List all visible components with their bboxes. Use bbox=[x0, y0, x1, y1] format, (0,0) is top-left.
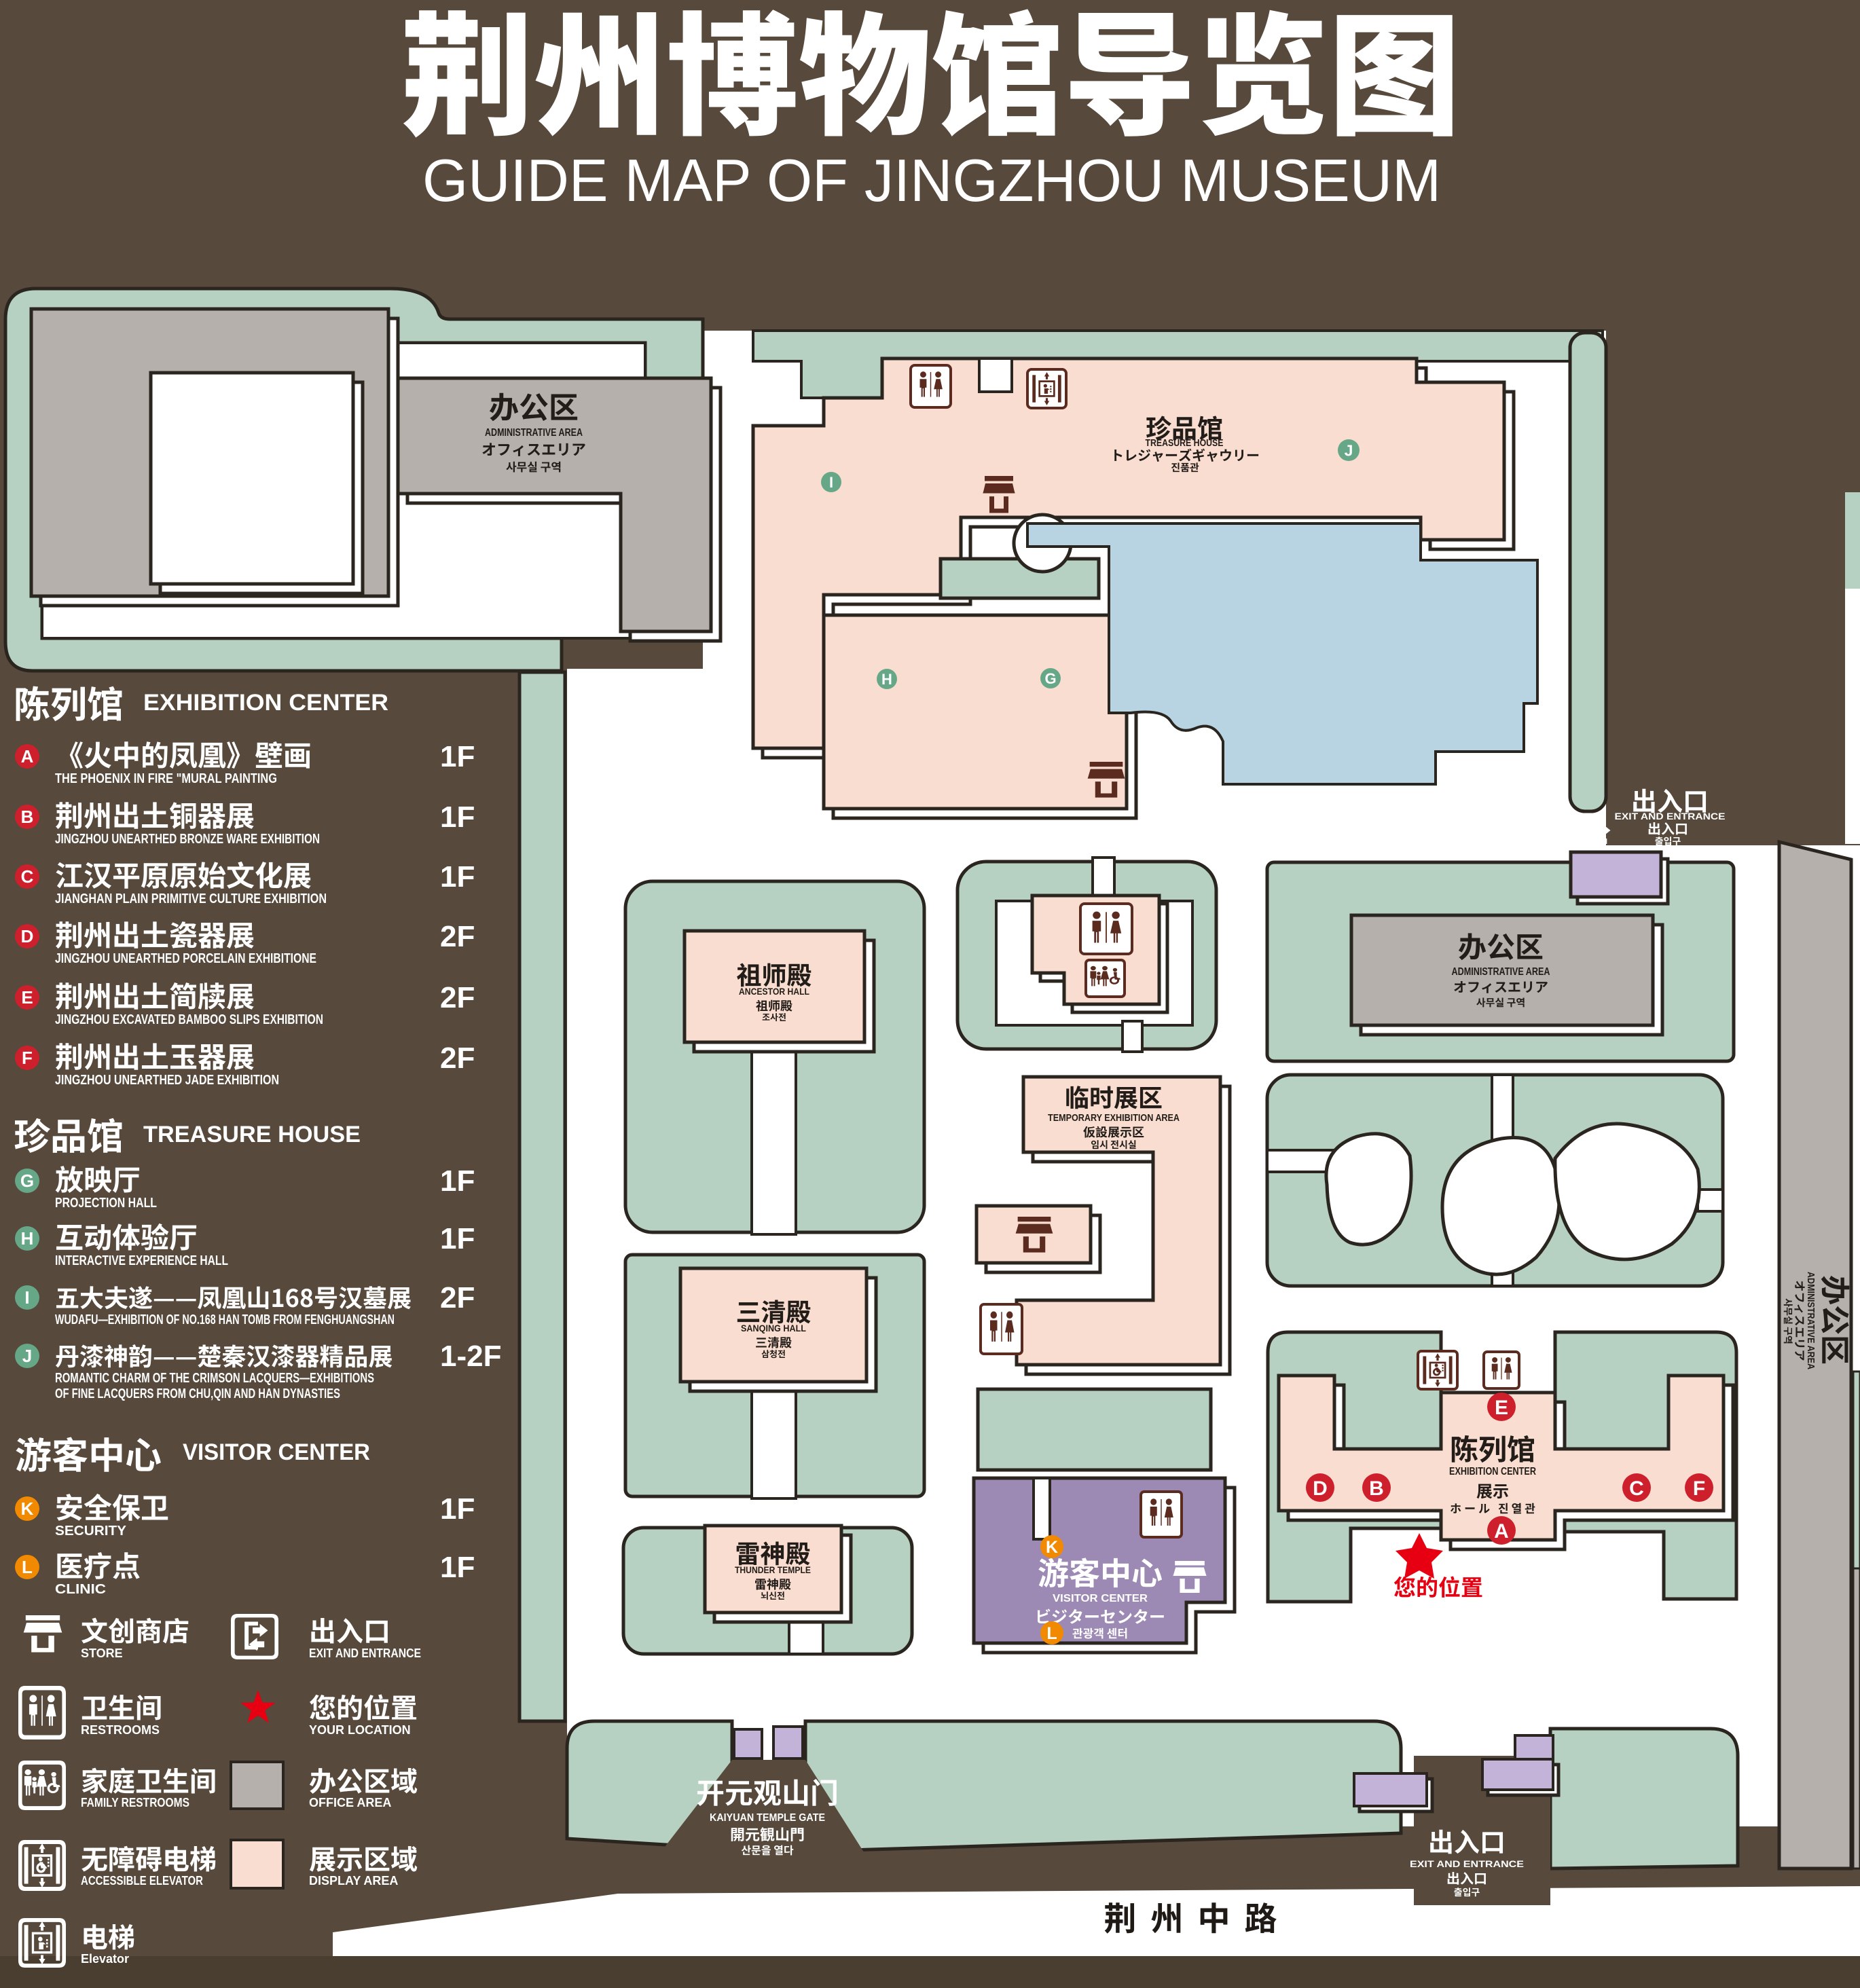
svg-text:C: C bbox=[21, 866, 34, 887]
svg-text:2F: 2F bbox=[440, 1281, 475, 1314]
svg-text:OF FINE LACQUERS FROM CHU,QIN: OF FINE LACQUERS FROM CHU,QIN AND HAN DY… bbox=[55, 1386, 340, 1401]
svg-text:ADMINISTRATIVE AREA: ADMINISTRATIVE AREA bbox=[485, 427, 583, 439]
svg-text:TEMPORARY EXHIBITION AREA: TEMPORARY EXHIBITION AREA bbox=[1048, 1112, 1180, 1124]
svg-text:1F: 1F bbox=[440, 1164, 475, 1198]
svg-text:OFFICE AREA: OFFICE AREA bbox=[309, 1796, 391, 1809]
svg-text:B: B bbox=[21, 807, 34, 827]
svg-text:VISITOR CENTER: VISITOR CENTER bbox=[1053, 1593, 1148, 1604]
svg-text:F: F bbox=[1693, 1477, 1705, 1500]
svg-text:GUIDE MAP OF JINGZHOU MUSEUM: GUIDE MAP OF JINGZHOU MUSEUM bbox=[422, 147, 1441, 214]
svg-text:1F: 1F bbox=[440, 1551, 475, 1584]
svg-text:2F: 2F bbox=[440, 981, 475, 1014]
svg-text:C: C bbox=[1629, 1477, 1644, 1500]
svg-text:2F: 2F bbox=[440, 920, 475, 953]
svg-text:I: I bbox=[829, 474, 833, 491]
svg-text:THUNDER TEMPLE: THUNDER TEMPLE bbox=[735, 1564, 811, 1575]
svg-text:EXIT AND ENTRANCE: EXIT AND ENTRANCE bbox=[1615, 811, 1726, 822]
svg-text:J: J bbox=[1345, 441, 1353, 459]
svg-text:Elevator: Elevator bbox=[81, 1952, 129, 1966]
svg-text:TREASURE HOUSE: TREASURE HOUSE bbox=[1146, 437, 1224, 449]
svg-text:F: F bbox=[22, 1048, 33, 1068]
svg-text:JINGZHOU UNEARTHED PORCELAIN E: JINGZHOU UNEARTHED PORCELAIN EXHIBITIONE bbox=[55, 951, 316, 966]
svg-text:B: B bbox=[1369, 1477, 1384, 1500]
svg-text:VISITOR CENTER: VISITOR CENTER bbox=[183, 1439, 370, 1465]
svg-text:SECURITY: SECURITY bbox=[55, 1524, 127, 1539]
svg-text:JIANGHAN PLAIN PRIMITIVE CULTU: JIANGHAN PLAIN PRIMITIVE CULTURE EXHIBIT… bbox=[55, 891, 327, 906]
svg-text:THE PHOENIX IN FIRE "MURAL PAI: THE PHOENIX IN FIRE "MURAL PAINTING bbox=[55, 771, 277, 786]
svg-text:SANQING HALL: SANQING HALL bbox=[741, 1323, 806, 1333]
svg-text:JINGZHOU EXCAVATED BAMBOO SLIP: JINGZHOU EXCAVATED BAMBOO SLIPS EXHIBITI… bbox=[55, 1012, 323, 1027]
svg-text:ANCESTOR HALL: ANCESTOR HALL bbox=[739, 986, 809, 997]
svg-text:ROMANTIC CHARM OF THE CRIMSON: ROMANTIC CHARM OF THE CRIMSON LACQUERS—E… bbox=[55, 1371, 374, 1386]
svg-text:A: A bbox=[1494, 1520, 1509, 1543]
svg-text:KAIYUAN TEMPLE GATE: KAIYUAN TEMPLE GATE bbox=[710, 1812, 825, 1824]
svg-text:H: H bbox=[21, 1228, 34, 1249]
svg-text:1F: 1F bbox=[440, 740, 475, 773]
svg-text:K: K bbox=[1046, 1538, 1058, 1557]
svg-text:1F: 1F bbox=[440, 1492, 475, 1526]
svg-text:RESTROOMS: RESTROOMS bbox=[81, 1723, 160, 1737]
svg-text:1F: 1F bbox=[440, 1222, 475, 1255]
svg-text:1F: 1F bbox=[440, 860, 475, 894]
svg-text:EXIT AND ENTRANCE: EXIT AND ENTRANCE bbox=[309, 1646, 421, 1660]
svg-text:I: I bbox=[24, 1287, 29, 1308]
svg-text:YOUR LOCATION: YOUR LOCATION bbox=[309, 1723, 411, 1737]
svg-text:D: D bbox=[21, 926, 34, 946]
svg-text:JINGZHOU UNEARTHED JADE EXHIBI: JINGZHOU UNEARTHED JADE EXHIBITION bbox=[55, 1073, 279, 1088]
svg-text:EXHIBITION CENTER: EXHIBITION CENTER bbox=[143, 690, 388, 716]
svg-text:STORE: STORE bbox=[81, 1646, 123, 1660]
svg-text:D: D bbox=[1313, 1477, 1328, 1500]
svg-text:FAMILY RESTROOMS: FAMILY RESTROOMS bbox=[81, 1796, 189, 1809]
svg-text:1-2F: 1-2F bbox=[440, 1340, 501, 1373]
svg-text:WUDAFU—EXHIBITION OF NO.168 HA: WUDAFU—EXHIBITION OF NO.168 HAN TOMB FRO… bbox=[55, 1312, 395, 1327]
svg-text:EXHIBITION CENTER: EXHIBITION CENTER bbox=[1449, 1466, 1536, 1477]
svg-text:H: H bbox=[881, 671, 892, 688]
svg-text:E: E bbox=[1495, 1397, 1508, 1419]
svg-text:A: A bbox=[21, 746, 34, 767]
svg-text:JINGZHOU UNEARTHED BRONZE WARE: JINGZHOU UNEARTHED BRONZE WARE EXHIBITIO… bbox=[55, 832, 320, 847]
svg-text:ADMINISTRATIVE AREA: ADMINISTRATIVE AREA bbox=[1452, 966, 1550, 978]
svg-text:1F: 1F bbox=[440, 800, 475, 834]
svg-text:TREASURE HOUSE: TREASURE HOUSE bbox=[143, 1122, 361, 1147]
svg-text:E: E bbox=[21, 987, 33, 1008]
svg-text:ACCESSIBLE ELEVATOR: ACCESSIBLE ELEVATOR bbox=[81, 1874, 203, 1888]
svg-text:EXIT AND ENTRANCE: EXIT AND ENTRANCE bbox=[1410, 1858, 1524, 1869]
svg-text:2F: 2F bbox=[440, 1042, 475, 1075]
svg-text:J: J bbox=[22, 1346, 32, 1366]
svg-text:G: G bbox=[20, 1171, 34, 1191]
svg-text:L: L bbox=[1046, 1624, 1057, 1643]
svg-text:INTERACTIVE EXPERIENCE HALL: INTERACTIVE EXPERIENCE HALL bbox=[55, 1253, 228, 1268]
svg-text:PROJECTION HALL: PROJECTION HALL bbox=[55, 1196, 157, 1211]
svg-text:L: L bbox=[22, 1557, 33, 1577]
svg-text:CLINIC: CLINIC bbox=[55, 1582, 106, 1597]
svg-text:ADMINISTRATIVE AREA: ADMINISTRATIVE AREA bbox=[1805, 1272, 1817, 1369]
svg-text:K: K bbox=[21, 1498, 34, 1519]
svg-text:DISPLAY AREA: DISPLAY AREA bbox=[309, 1874, 398, 1888]
svg-text:G: G bbox=[1044, 670, 1056, 687]
